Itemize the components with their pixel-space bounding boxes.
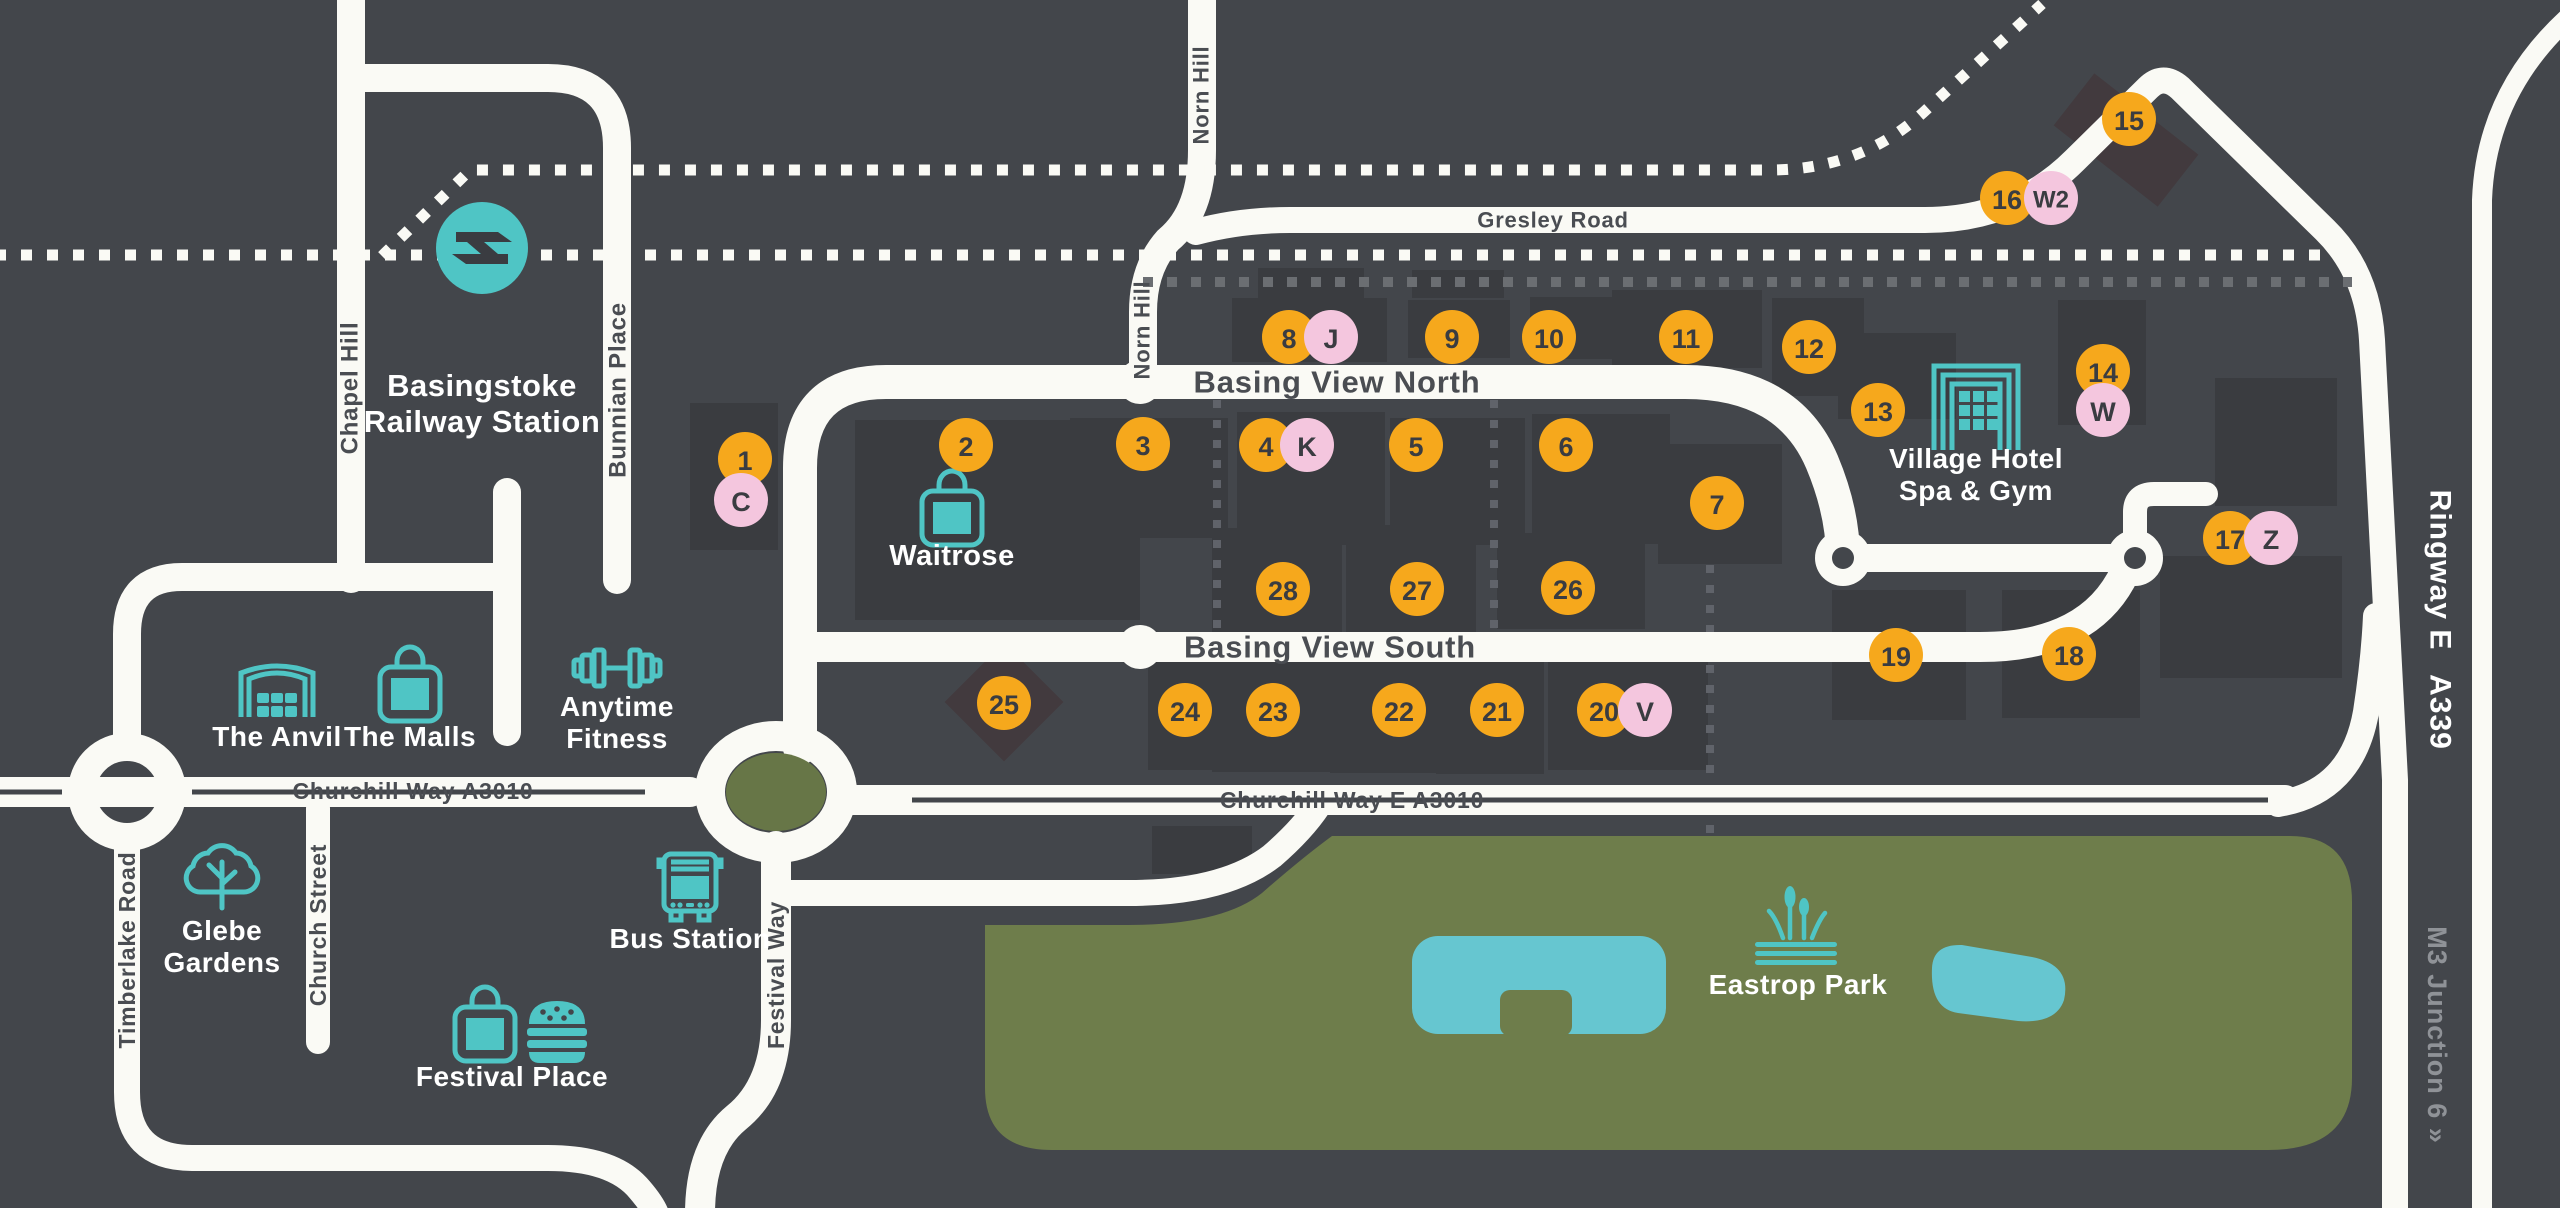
plot-marker-label: 20 xyxy=(1589,697,1619,727)
plot-marker-label: 24 xyxy=(1170,697,1200,727)
plot-marker-23[interactable]: 23 xyxy=(1246,683,1300,737)
plot-marker-label: 15 xyxy=(2114,106,2144,136)
plot-marker-label: 4 xyxy=(1258,432,1273,462)
plot-marker-6[interactable]: 6 xyxy=(1539,418,1593,472)
plot-marker-label: C xyxy=(731,487,751,517)
landmark-label-basingstoke-railway-station: Basingstoke xyxy=(387,368,577,403)
landmark-label-glebe-gardens: Glebe xyxy=(182,915,262,946)
plot-marker-label: 16 xyxy=(1992,185,2022,215)
plot-marker-22[interactable]: 22 xyxy=(1372,683,1426,737)
plot-marker-5[interactable]: 5 xyxy=(1389,418,1443,472)
plot-marker-label: 22 xyxy=(1384,697,1414,727)
rail-icon xyxy=(436,202,528,294)
plot-marker-label: V xyxy=(1636,697,1654,727)
plot-marker-label: 2 xyxy=(958,432,973,462)
plot-marker-21[interactable]: 21 xyxy=(1470,683,1524,737)
plot-marker-19[interactable]: 19 xyxy=(1869,628,1923,682)
plot-marker-V[interactable]: V xyxy=(1618,683,1672,737)
plot-marker-10[interactable]: 10 xyxy=(1522,310,1576,364)
plot-marker-label: 26 xyxy=(1553,575,1583,605)
plot-marker-label: Z xyxy=(2263,525,2280,555)
road-label-a339: A339 xyxy=(2424,674,2457,750)
plot-marker-15[interactable]: 15 xyxy=(2102,92,2156,146)
plot-marker-12[interactable]: 12 xyxy=(1782,320,1836,374)
plot-marker-2[interactable]: 2 xyxy=(939,418,993,472)
node-loop-east-hole xyxy=(2124,547,2146,569)
plot-marker-label: 7 xyxy=(1709,490,1724,520)
basing-view-map: Chapel HillBunnian PlaceNorn HillNorn Hi… xyxy=(0,0,2560,1208)
landmark-label-bus-station: Bus Station xyxy=(609,923,770,954)
junction-dot-chapel xyxy=(335,561,367,593)
plot-marker-K[interactable]: K xyxy=(1280,418,1334,472)
plot-marker-label: 1 xyxy=(737,446,752,476)
map-canvas: Chapel HillBunnian PlaceNorn HillNorn Hi… xyxy=(0,0,2560,1208)
road-label-timberlake-road: Timberlake Road xyxy=(114,852,140,1049)
plot-marker-label: 6 xyxy=(1558,432,1573,462)
plot-marker-label: 13 xyxy=(1863,397,1893,427)
road-label-bunnian-place: Bunnian Place xyxy=(605,302,632,478)
plot-marker-label: K xyxy=(1297,432,1317,462)
road-label-basing-view-south: Basing View South xyxy=(1184,630,1476,665)
plot-marker-label: 25 xyxy=(989,690,1019,720)
road-label-churchill-way-e-a3010: Churchill Way E A3010 xyxy=(1220,787,1484,813)
road-label-norn-hill-lower: Norn Hill xyxy=(1130,281,1155,380)
road-label-norn-hill-upper: Norn Hill xyxy=(1189,46,1214,145)
plot-marker-label: 3 xyxy=(1135,431,1150,461)
landmark-label-the-malls: The Malls xyxy=(344,721,476,752)
plot-marker-label: 17 xyxy=(2215,525,2245,555)
plot-marker-label: J xyxy=(1323,324,1338,354)
road-label-church-street: Church Street xyxy=(305,844,331,1006)
plot-marker-label: 5 xyxy=(1408,432,1423,462)
plot-marker-label: 19 xyxy=(1881,642,1911,672)
landmark-label-eastrop-park: Eastrop Park xyxy=(1709,969,1888,1000)
plot-marker-Z[interactable]: Z xyxy=(2244,511,2298,565)
landmark-label-glebe-gardens: Gardens xyxy=(163,947,280,978)
plot-marker-label: 28 xyxy=(1268,576,1298,606)
burger-icon xyxy=(527,1001,587,1063)
plot-marker-25[interactable]: 25 xyxy=(977,676,1031,730)
plot-marker-11[interactable]: 11 xyxy=(1659,310,1713,364)
plot-marker-W[interactable]: W xyxy=(2076,383,2130,437)
landmark-label-festival-place: Festival Place xyxy=(416,1061,608,1092)
landmark-label-waitrose: Waitrose xyxy=(889,540,1014,572)
plot-marker-27[interactable]: 27 xyxy=(1390,562,1444,616)
plot-marker-label: 8 xyxy=(1281,324,1296,354)
plot-marker-7[interactable]: 7 xyxy=(1690,476,1744,530)
landmark-label-anytime-fitness: Fitness xyxy=(566,723,668,754)
plot-marker-W2[interactable]: W2 xyxy=(2024,171,2078,225)
plot-marker-13[interactable]: 13 xyxy=(1851,383,1905,437)
landmark-label-village-hotel-spa-gym: Spa & Gym xyxy=(1899,475,2053,506)
node-loop-west-hole xyxy=(1832,547,1854,569)
plot-marker-J[interactable]: J xyxy=(1304,310,1358,364)
road-label-ringway-e: Ringway E xyxy=(2424,490,2457,651)
plot-marker-label: 11 xyxy=(1672,324,1701,354)
plot-marker-label: W xyxy=(2090,397,2116,427)
road-label-chapel-hill: Chapel Hill xyxy=(337,322,364,455)
plot-marker-label: 21 xyxy=(1482,697,1512,727)
landmark-label-the-anvil: The Anvil xyxy=(212,721,341,752)
plot-marker-24[interactable]: 24 xyxy=(1158,683,1212,737)
plot-marker-26[interactable]: 26 xyxy=(1541,561,1595,615)
road-label-churchill-way-a3010: Churchill Way A3010 xyxy=(292,778,533,804)
road-label-m3-junction-6: M3 Junction 6 » xyxy=(2422,926,2452,1144)
plot-marker-label: 27 xyxy=(1402,576,1432,606)
plot-marker-9[interactable]: 9 xyxy=(1425,310,1479,364)
plot-marker-label: 18 xyxy=(2054,641,2084,671)
node-basing-view-south xyxy=(1118,625,1162,669)
plot-marker-label: 9 xyxy=(1444,324,1459,354)
central-roundabout-green xyxy=(726,753,826,831)
road-label-basing-view-north: Basing View North xyxy=(1194,365,1481,400)
lake-pool-notch xyxy=(1500,990,1572,1036)
plot-marker-label: 12 xyxy=(1794,334,1824,364)
plot-marker-label: 23 xyxy=(1258,697,1288,727)
plot-marker-28[interactable]: 28 xyxy=(1256,562,1310,616)
plot-marker-3[interactable]: 3 xyxy=(1116,417,1170,471)
plot-marker-18[interactable]: 18 xyxy=(2042,627,2096,681)
landmark-label-village-hotel-spa-gym: Village Hotel xyxy=(1889,443,2063,474)
plot-marker-label: W2 xyxy=(2033,187,2069,214)
landmark-label-anytime-fitness: Anytime xyxy=(560,691,674,722)
road-label-gresley-road: Gresley Road xyxy=(1477,208,1628,233)
landmark-label-basingstoke-railway-station: Railway Station xyxy=(364,404,601,439)
plot-marker-label: 10 xyxy=(1534,324,1564,354)
plot-marker-C[interactable]: C xyxy=(714,473,768,527)
